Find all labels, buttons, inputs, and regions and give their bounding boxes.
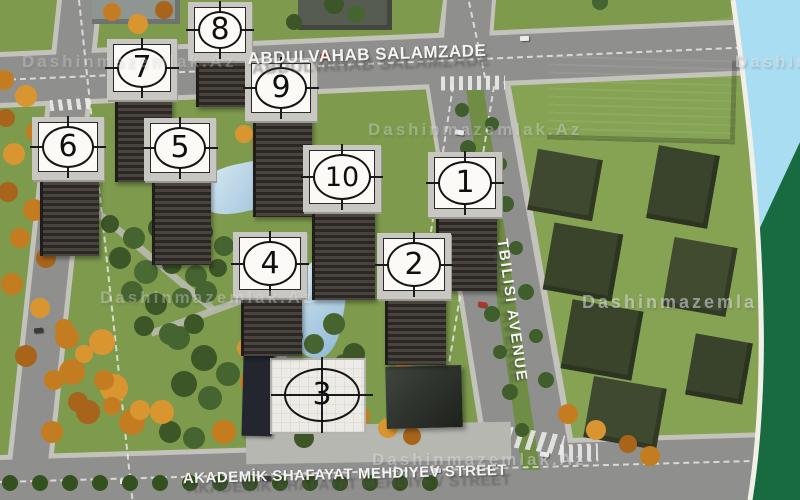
building-tower-4: 4 <box>239 237 301 290</box>
building-facade <box>312 202 376 300</box>
building-number-circle: 9 <box>255 67 307 109</box>
building-number: 8 <box>210 15 229 45</box>
building-tower-5: 5 <box>150 123 210 173</box>
building-number-plate: 1 <box>434 157 496 209</box>
building-number-plate: 3 <box>280 364 364 426</box>
building-number-plate: 6 <box>38 122 98 172</box>
building-number: 10 <box>325 164 359 191</box>
building-number-plate: 9 <box>251 63 311 113</box>
building-number-circle: 1 <box>438 161 492 205</box>
watermark: Dashinmazemlak.Az <box>372 450 586 470</box>
building-number-circle: 10 <box>313 154 371 200</box>
city-block <box>92 0 180 24</box>
building-facade <box>152 171 210 265</box>
city-block <box>646 145 720 229</box>
building-tower-1: 1 <box>434 157 496 209</box>
crosswalk <box>50 98 93 111</box>
building-number-plate: 10 <box>309 150 375 204</box>
building-tower-10: 10 <box>309 150 375 204</box>
building-number-circle: 5 <box>154 127 206 169</box>
watermark: Dashinmazemlak.Az <box>582 292 800 313</box>
city-block <box>685 333 753 404</box>
city-block <box>583 376 667 450</box>
building-number: 2 <box>404 250 423 280</box>
crosswalk <box>441 75 505 90</box>
building-tower-3: 3 <box>258 354 362 438</box>
building-number: 6 <box>58 132 77 162</box>
building-number-circle: 8 <box>198 11 242 49</box>
building-number-plate: 5 <box>150 123 210 173</box>
building-tower-2: 2 <box>383 238 445 291</box>
building-number: 1 <box>455 168 474 198</box>
site-plan-map: 8 7 9 6 5 10 <box>0 0 800 500</box>
building-tower-9: 9 <box>251 63 311 113</box>
city-block <box>527 149 603 222</box>
building-number: 3 <box>312 380 331 410</box>
building-facade <box>40 170 98 256</box>
watermark: Dashinmazemlak.Az <box>368 120 582 140</box>
watermark: Dashinmazemlak.Az <box>735 52 800 72</box>
building-number-plate: 4 <box>239 237 301 290</box>
flat-dark-building <box>385 365 463 429</box>
car <box>34 328 43 334</box>
building-number-plate: 8 <box>194 7 246 53</box>
building-number: 5 <box>170 133 189 163</box>
watermark: Dashinmazemlak.Az <box>100 288 314 308</box>
building-tower-6: 6 <box>38 122 98 172</box>
building-number-circle: 2 <box>387 242 441 287</box>
building-number-circle: 6 <box>42 126 94 168</box>
building-facade <box>385 289 445 365</box>
building-number: 9 <box>271 73 290 103</box>
building-number: 4 <box>260 249 279 279</box>
building-number-circle: 4 <box>243 241 297 286</box>
city-block <box>543 222 624 301</box>
city-block <box>298 0 392 30</box>
building-number-circle: 3 <box>284 368 360 422</box>
building-number-plate: 2 <box>383 238 445 291</box>
car <box>520 36 529 41</box>
building-tower-8: 8 <box>194 7 246 53</box>
watermark: Dashinmazemlak.Az <box>22 52 236 72</box>
